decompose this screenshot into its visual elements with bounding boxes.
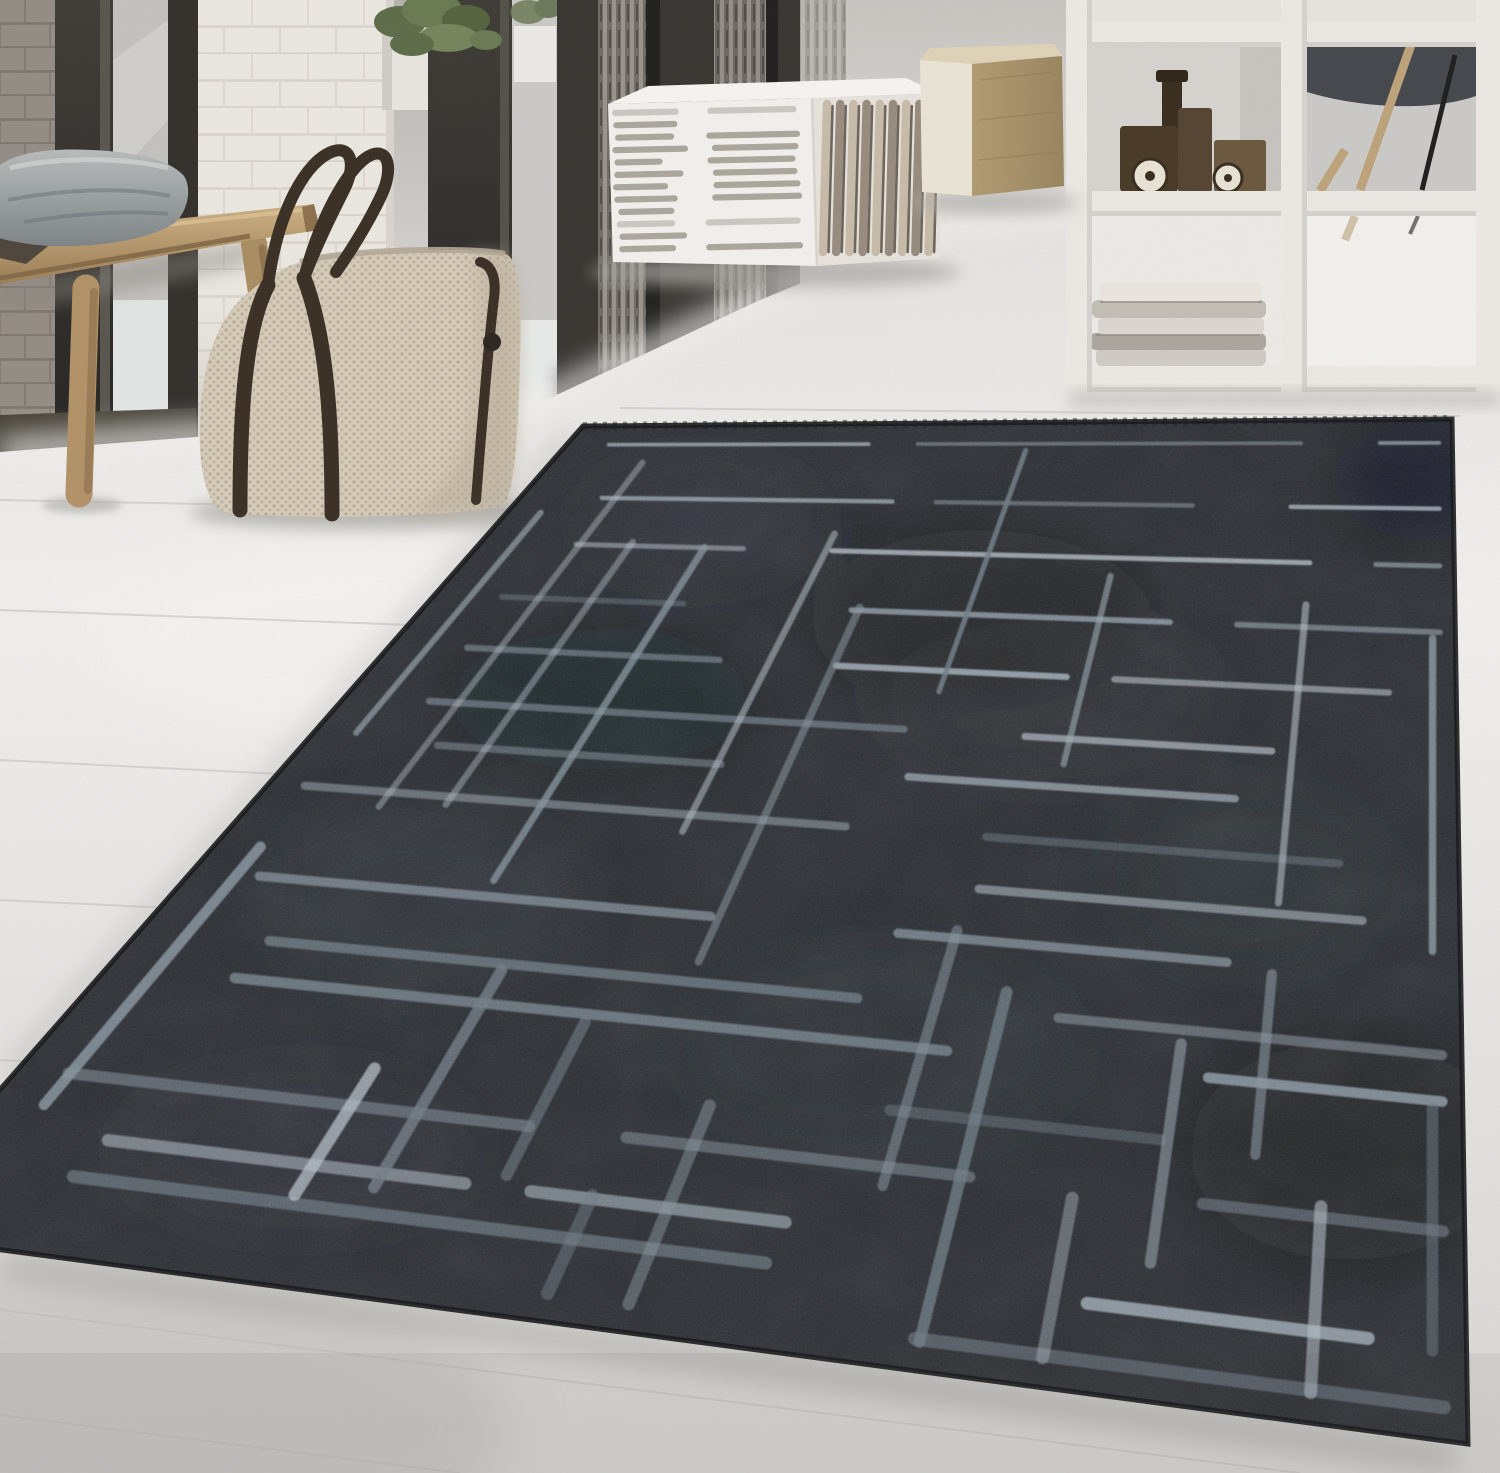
photo-grain <box>0 0 1500 1473</box>
scene-canvas <box>0 0 1500 1473</box>
rug-product-photo <box>0 0 1500 1473</box>
